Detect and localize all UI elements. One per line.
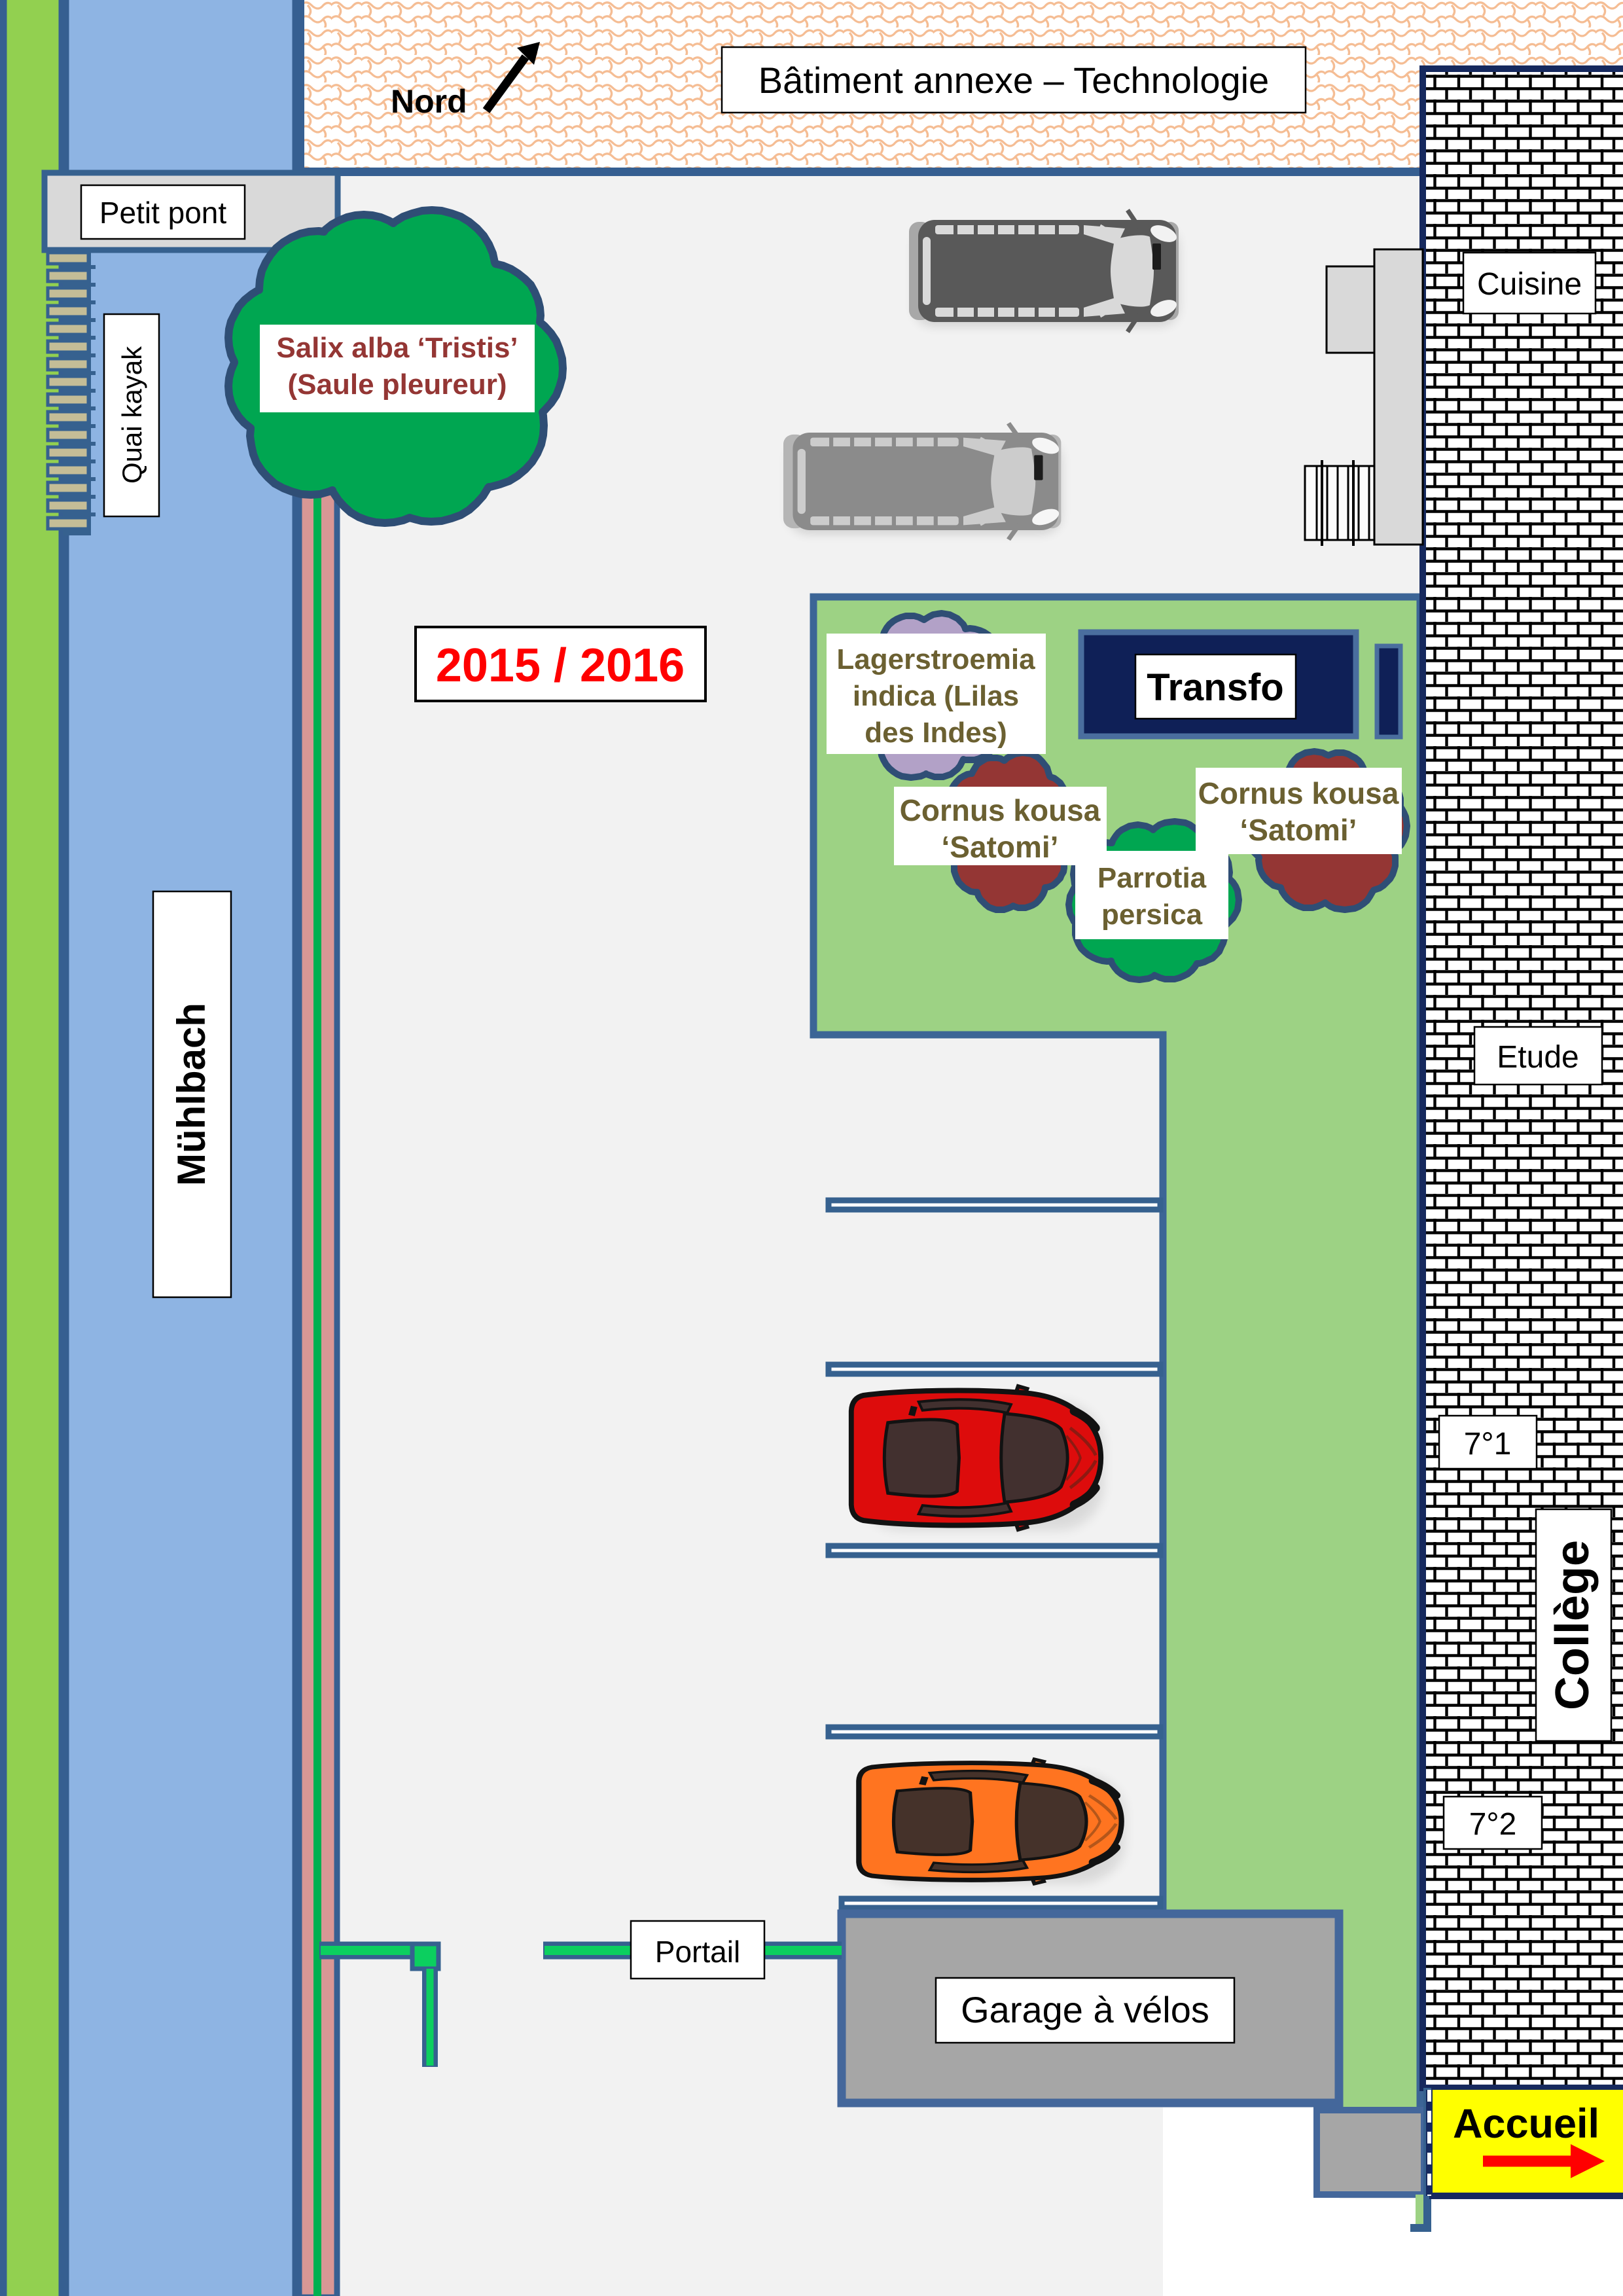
svg-text:Cornus kousa: Cornus kousa xyxy=(900,793,1101,827)
svg-text:Garage à vélos: Garage à vélos xyxy=(961,1989,1209,2030)
svg-text:Bâtiment annexe – Technologie: Bâtiment annexe – Technologie xyxy=(758,60,1269,101)
svg-text:(Saule pleureur): (Saule pleureur) xyxy=(288,368,507,401)
svg-text:Cornus kousa: Cornus kousa xyxy=(1198,776,1399,810)
svg-text:Portail: Portail xyxy=(655,1935,740,1969)
svg-text:‘Satomi’: ‘Satomi’ xyxy=(942,830,1059,864)
svg-text:Transfo: Transfo xyxy=(1147,666,1284,709)
svg-text:Collège: Collège xyxy=(1546,1540,1599,1710)
svg-text:Accueil: Accueil xyxy=(1453,2101,1599,2147)
svg-text:des Indes): des Indes) xyxy=(865,717,1007,749)
svg-text:indica (Lilas: indica (Lilas xyxy=(853,680,1019,712)
svg-text:Lagerstroemia: Lagerstroemia xyxy=(836,643,1035,675)
svg-text:Petit pont: Petit pont xyxy=(99,196,227,230)
svg-text:Etude: Etude xyxy=(1497,1040,1578,1075)
svg-text:Parrotia: Parrotia xyxy=(1097,862,1207,894)
svg-text:Cuisine: Cuisine xyxy=(1477,267,1582,302)
svg-text:persica: persica xyxy=(1101,899,1203,931)
svg-text:7°2: 7°2 xyxy=(1469,1807,1517,1842)
svg-text:7°1: 7°1 xyxy=(1464,1427,1512,1462)
svg-text:Salix alba ‘Tristis’: Salix alba ‘Tristis’ xyxy=(276,332,518,364)
svg-text:Quai kayak: Quai kayak xyxy=(116,346,147,484)
svg-text:Mühlbach: Mühlbach xyxy=(169,1003,213,1186)
svg-text:‘Satomi’: ‘Satomi’ xyxy=(1240,813,1357,847)
svg-text:Nord: Nord xyxy=(391,83,467,120)
svg-text:2015 / 2016: 2015 / 2016 xyxy=(436,639,685,692)
